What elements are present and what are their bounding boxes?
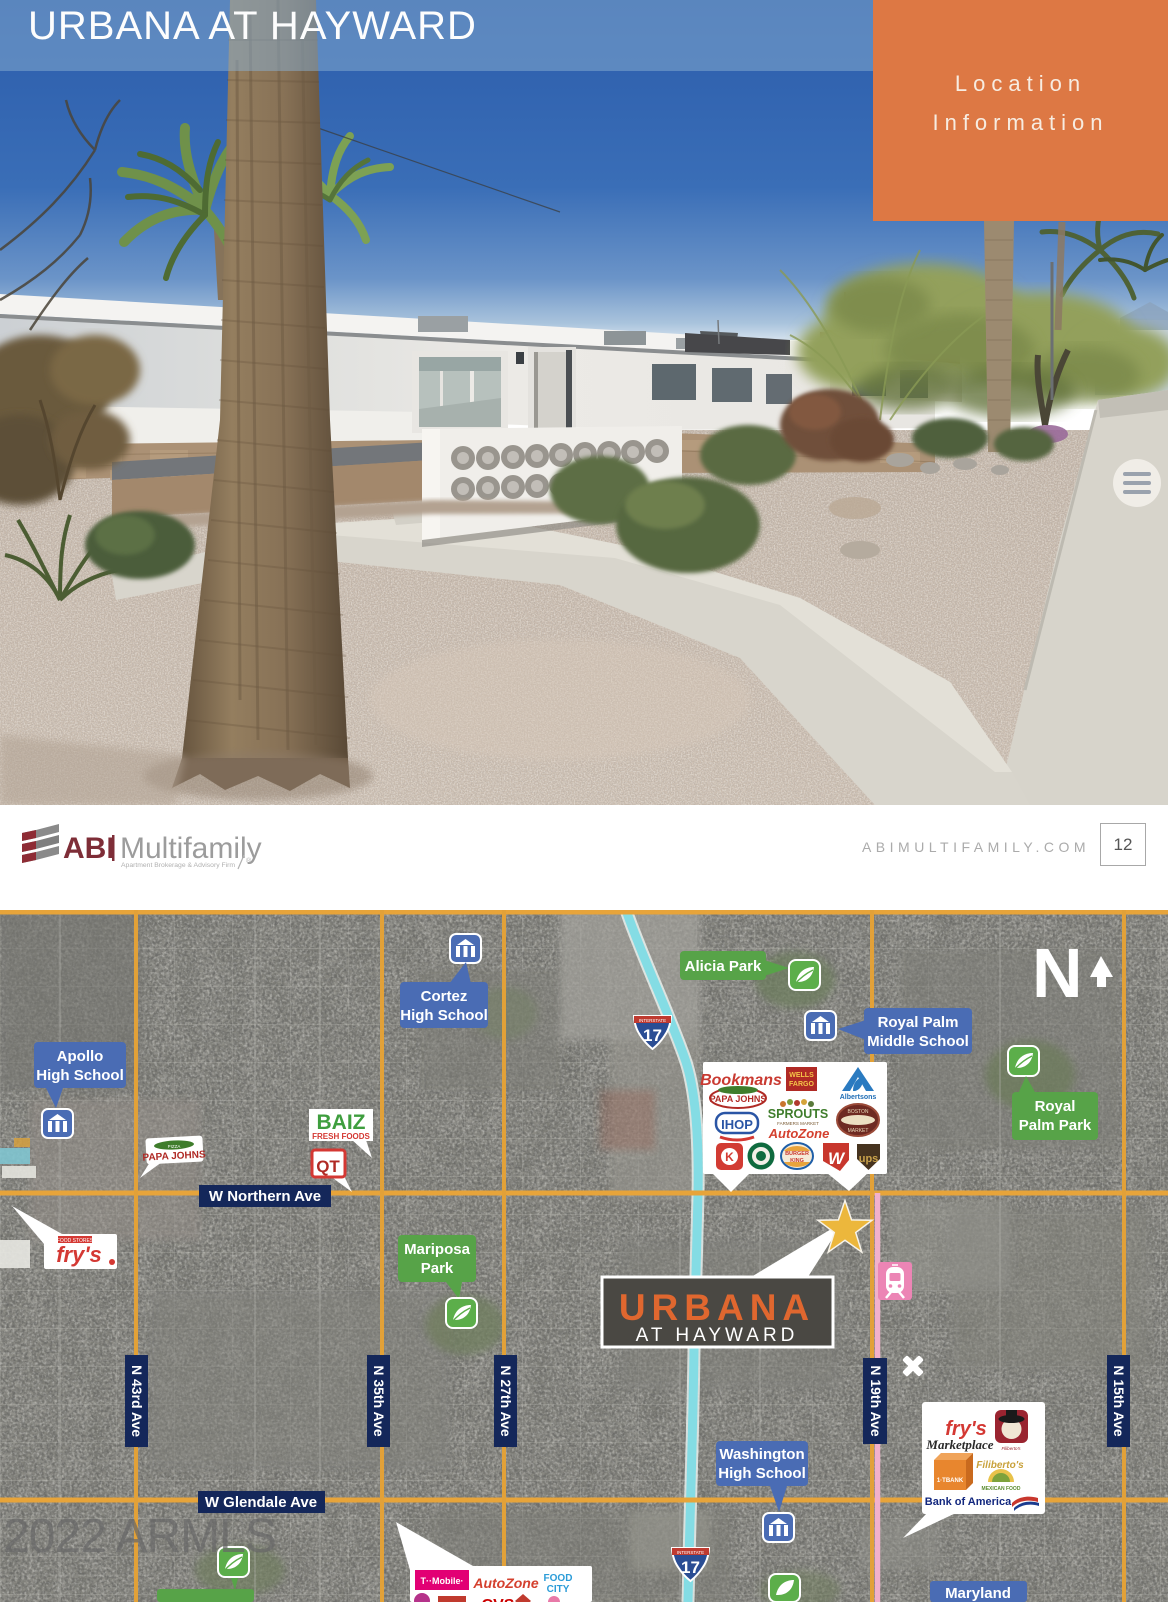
svg-text:AutoZone: AutoZone (768, 1126, 830, 1141)
svg-text:BURGER: BURGER (785, 1151, 809, 1157)
svg-text:17: 17 (681, 1558, 700, 1577)
svg-text:AT HAYWARD: AT HAYWARD (636, 1325, 799, 1346)
svg-text:®: ® (246, 857, 252, 865)
svg-text:MEXICAN FOOD: MEXICAN FOOD (982, 1486, 1021, 1492)
svg-text:AutoZone: AutoZone (472, 1575, 539, 1591)
svg-text:N 43rd Ave: N 43rd Ave (129, 1365, 145, 1437)
svg-text:Cortez: Cortez (421, 988, 468, 1005)
svg-text:Mariposa: Mariposa (404, 1241, 471, 1258)
svg-text:Washington: Washington (719, 1446, 804, 1463)
svg-text:Royal: Royal (1035, 1098, 1076, 1115)
svg-text:INTERSTATE: INTERSTATE (639, 1018, 666, 1023)
svg-text:CITY: CITY (547, 1584, 570, 1595)
svg-text:W Northern Ave: W Northern Ave (209, 1188, 321, 1205)
svg-text:QT: QT (316, 1157, 340, 1176)
svg-text:Middle School: Middle School (867, 1033, 969, 1050)
svg-text:W Glendale Ave: W Glendale Ave (205, 1494, 317, 1511)
svg-text:FRESH FOODS: FRESH FOODS (312, 1132, 370, 1141)
svg-text:KING: KING (790, 1158, 804, 1164)
svg-text:ABI: ABI (63, 832, 115, 865)
svg-text:Marketplace: Marketplace (925, 1437, 993, 1452)
svg-text:Bank of America: Bank of America (925, 1496, 1012, 1508)
svg-text:Royal Palm: Royal Palm (878, 1014, 959, 1031)
svg-text:SPROUTS: SPROUTS (768, 1107, 828, 1121)
svg-text:Alicia Park: Alicia Park (685, 958, 762, 975)
svg-text:PAPA JOHNS: PAPA JOHNS (710, 1094, 767, 1104)
svg-text:URBANA: URBANA (619, 1287, 815, 1328)
svg-text:17: 17 (643, 1026, 662, 1045)
svg-text:Palm Park: Palm Park (1019, 1117, 1092, 1134)
svg-text:PIZZA: PIZZA (168, 1144, 181, 1149)
svg-text:WELLS: WELLS (789, 1072, 814, 1079)
svg-text:IHOP: IHOP (721, 1117, 753, 1132)
svg-text:N 15th Ave: N 15th Ave (1111, 1365, 1127, 1437)
svg-text:K: K (725, 1150, 734, 1164)
svg-text:fry's: fry's (56, 1242, 102, 1267)
svg-text:1·TBANK: 1·TBANK (937, 1478, 964, 1484)
svg-text:Filiberto's: Filiberto's (1001, 1446, 1021, 1451)
svg-text:BOSTON: BOSTON (847, 1109, 868, 1115)
svg-text:Albertsons: Albertsons (840, 1094, 877, 1101)
svg-text:Apartment Brokerage & Advisory: Apartment Brokerage & Advisory Firm (121, 862, 235, 869)
svg-text:FOOD: FOOD (544, 1573, 573, 1584)
svg-text:ups: ups (859, 1153, 879, 1165)
svg-text:T··Mobile·: T··Mobile· (421, 1576, 464, 1586)
svg-text:CVS: CVS (482, 1597, 515, 1602)
svg-text:High School: High School (400, 1007, 488, 1024)
svg-text:N 19th Ave: N 19th Ave (868, 1365, 884, 1437)
svg-text:N 27th Ave: N 27th Ave (498, 1365, 514, 1437)
svg-text:High School: High School (36, 1067, 124, 1084)
svg-text:2022 ARMLS: 2022 ARMLS (3, 1510, 276, 1563)
svg-text:FARGO: FARGO (789, 1081, 814, 1088)
svg-text:High School: High School (718, 1465, 806, 1482)
svg-text:N 35th Ave: N 35th Ave (371, 1365, 387, 1437)
svg-text:Apollo: Apollo (57, 1048, 104, 1065)
svg-text:W: W (828, 1149, 846, 1168)
svg-text:MARKET: MARKET (848, 1128, 869, 1134)
svg-text:INTERSTATE: INTERSTATE (677, 1550, 704, 1555)
svg-text:Maryland: Maryland (945, 1585, 1011, 1602)
svg-text:Park: Park (421, 1260, 454, 1277)
svg-text:Multifamily: Multifamily (120, 832, 262, 865)
svg-text:N: N (1032, 934, 1083, 1012)
svg-text:BAIZ: BAIZ (317, 1111, 366, 1134)
